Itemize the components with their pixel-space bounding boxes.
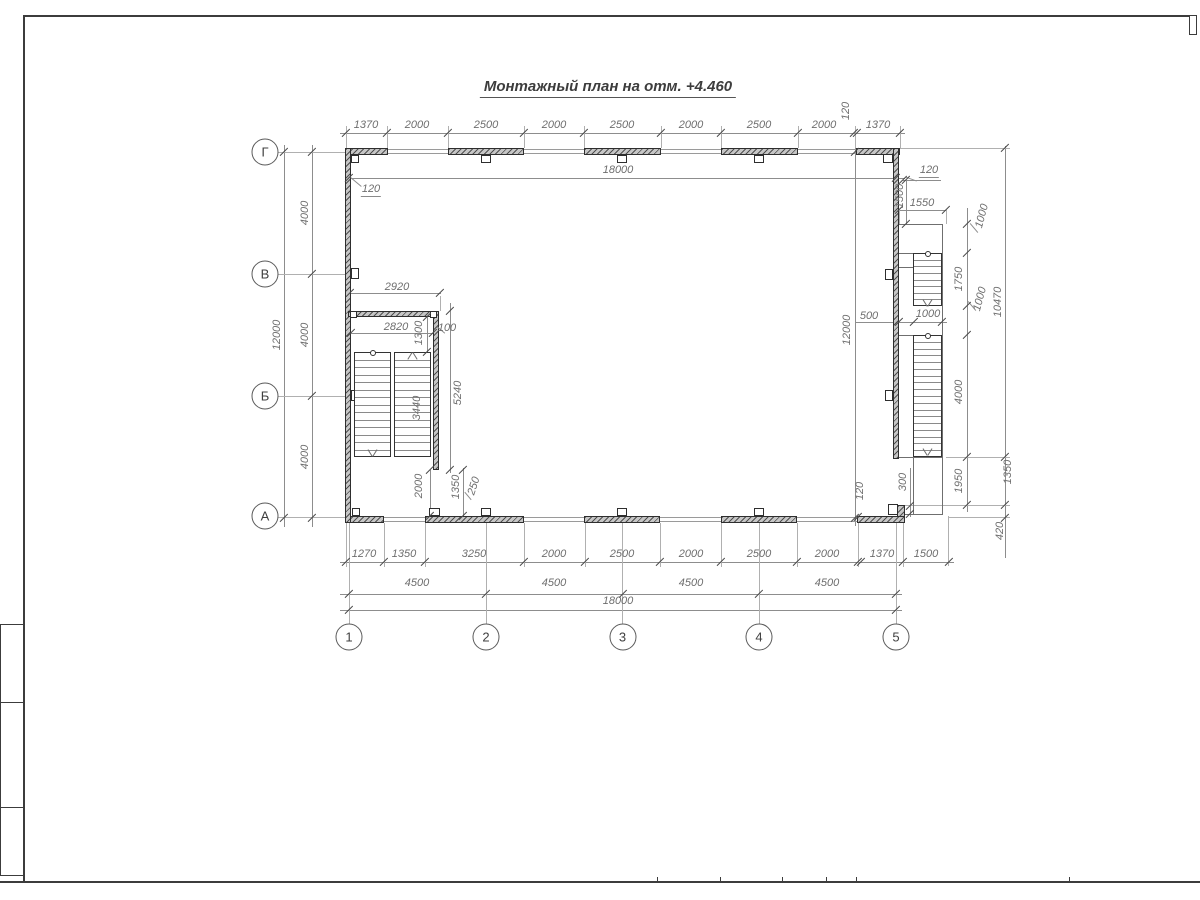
axis-bubble-row-Б: Б bbox=[252, 383, 279, 410]
axis-bubble-col-2: 2 bbox=[473, 624, 500, 651]
axis-bubble-row-А: А bbox=[252, 503, 279, 530]
axis-bubble-row-В: В bbox=[252, 261, 279, 288]
axis-bubble-layer: 12345ГВБА bbox=[0, 0, 1200, 900]
axis-bubble-col-5: 5 bbox=[883, 624, 910, 651]
drawing-sheet: Монтажный план на отм. +4.460 1370200025… bbox=[0, 0, 1200, 900]
axis-bubble-col-3: 3 bbox=[609, 624, 636, 651]
axis-bubble-col-1: 1 bbox=[336, 624, 363, 651]
axis-bubble-col-4: 4 bbox=[746, 624, 773, 651]
axis-bubble-row-Г: Г bbox=[252, 139, 279, 166]
